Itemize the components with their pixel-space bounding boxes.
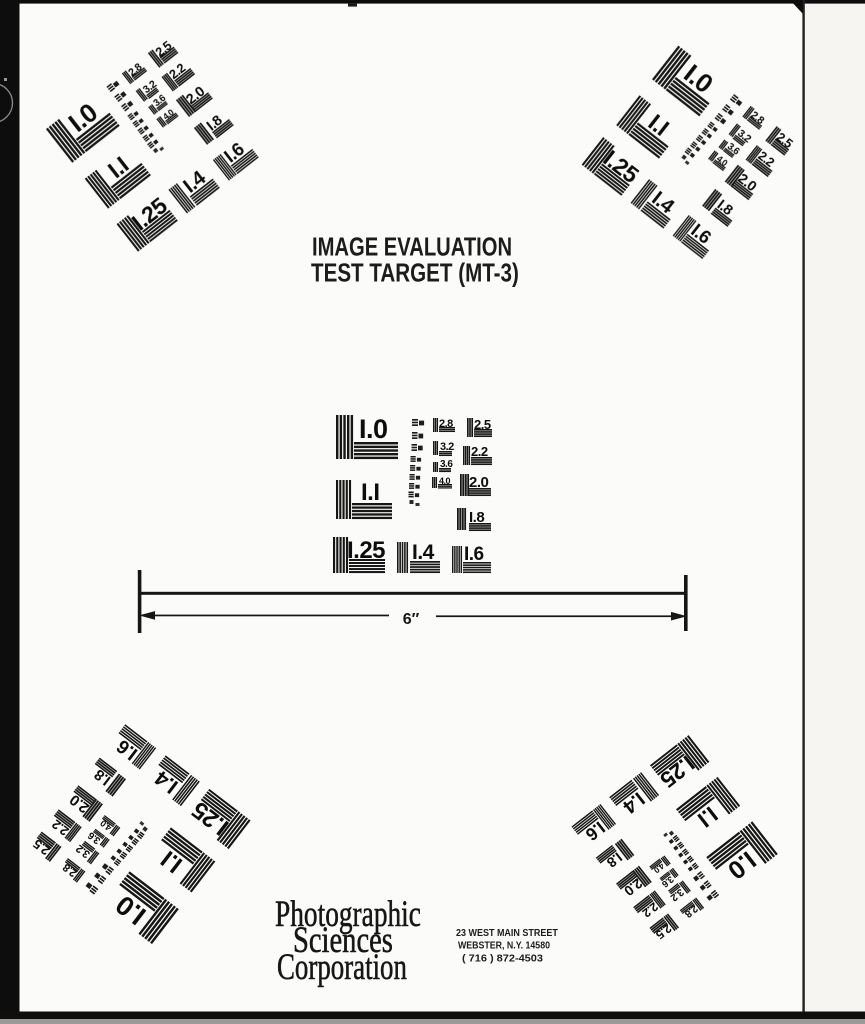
svg-text:I.0: I.0	[359, 414, 388, 444]
svg-text:I.8: I.8	[469, 509, 484, 526]
svg-text:I.4: I.4	[412, 541, 435, 564]
svg-text:6″: 6″	[403, 611, 420, 628]
svg-text:I.25: I.25	[347, 537, 385, 564]
svg-text:3.6: 3.6	[440, 459, 453, 470]
svg-text:2.5: 2.5	[474, 417, 491, 432]
svg-text:2.0: 2.0	[469, 474, 489, 491]
svg-text:IMAGE EVALUATION: IMAGE EVALUATION	[312, 232, 512, 261]
svg-text:WEBSTER, N.Y. 14580: WEBSTER, N.Y. 14580	[458, 940, 550, 952]
svg-text:23 WEST MAIN STREET: 23 WEST MAIN STREET	[456, 927, 558, 939]
svg-text:2.2: 2.2	[471, 444, 488, 459]
svg-text:( 716 ) 872-4503: ( 716 ) 872-4503	[462, 953, 543, 965]
svg-text:2.8: 2.8	[439, 418, 453, 430]
svg-text:4.0: 4.0	[439, 476, 451, 486]
svg-text:Corporation: Corporation	[277, 946, 407, 987]
svg-text:I.6: I.6	[464, 544, 484, 565]
svg-text:TEST TARGET (MT-3): TEST TARGET (MT-3)	[311, 258, 519, 287]
svg-text:3.2: 3.2	[440, 441, 454, 453]
svg-text:I.I: I.I	[361, 479, 380, 506]
